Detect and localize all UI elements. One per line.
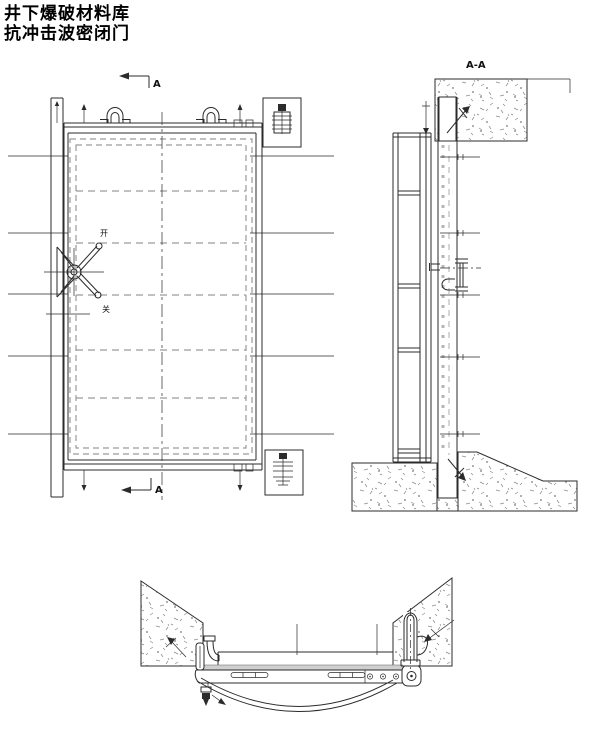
- hinge-bolt-plate: [365, 670, 399, 683]
- concrete-under-jamb: [437, 498, 458, 511]
- frame-pocket: [439, 97, 456, 141]
- seal-band: [197, 665, 405, 670]
- drawing-sheet: A A: [0, 0, 600, 756]
- hinge-bracket-top: [263, 98, 301, 147]
- handle-open-label: 开: [100, 229, 108, 238]
- plan-sill-band: [195, 670, 403, 683]
- concrete-wall-left: [141, 581, 203, 666]
- latch-assembly-section: [430, 259, 482, 291]
- drawing-canvas: 井下爆破材料库 抗冲击波密闭门 A A: [0, 0, 600, 756]
- sill-slot-right: [328, 673, 365, 678]
- panel-dashed-outline-outer: [70, 139, 252, 454]
- handwheel: 开 关: [44, 229, 110, 314]
- section-view: A-A: [352, 60, 577, 511]
- plan-latch: [196, 636, 226, 706]
- hinge-bracket-bottom: [265, 450, 303, 495]
- front-view: A A: [8, 73, 334, 501]
- stiffener-rows: [76, 191, 246, 398]
- anchor-pin-tips: [55, 101, 243, 491]
- handle-close-label: 关: [102, 304, 110, 314]
- section-marker-bottom: A: [121, 478, 163, 496]
- jamb-anchor-ticks: [440, 154, 480, 437]
- plan-view: [141, 578, 454, 712]
- slot-dividers: [243, 673, 353, 678]
- section-marker-top: A: [119, 73, 161, 91]
- section-view-label: A-A: [466, 60, 486, 71]
- sill-slot-left: [231, 673, 268, 678]
- lintel-extension-line: [527, 79, 570, 93]
- plan-centerline-ticks: [297, 624, 377, 655]
- door-frame-lines: [51, 98, 262, 497]
- door-leaf-section: [393, 133, 431, 462]
- anchor-pins: [57, 104, 240, 488]
- concrete-floor-right: [458, 452, 577, 511]
- door-swing-arc-inner: [201, 678, 393, 707]
- plan-door-leaf: [218, 652, 393, 665]
- hinge-pin-axis: [422, 101, 430, 134]
- section-letter-top: A: [153, 79, 161, 90]
- lifting-lug-icon: [100, 108, 226, 124]
- concrete-wall-right: [393, 578, 452, 666]
- concrete-floor-left: [352, 463, 437, 511]
